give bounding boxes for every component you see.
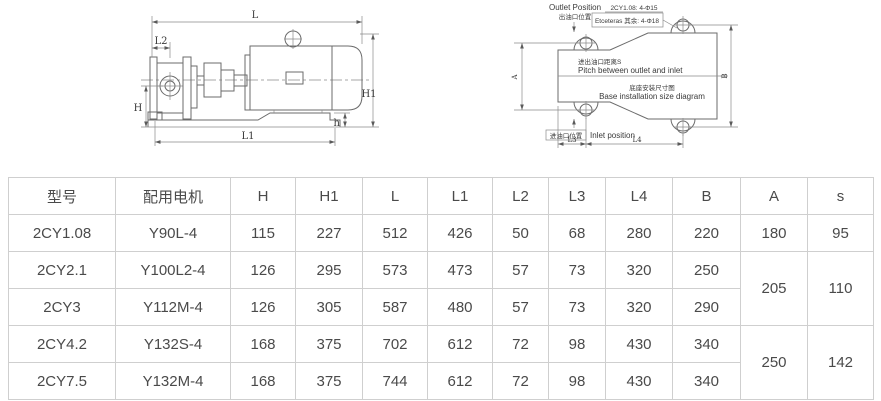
table-cell: 2CY3 [9,289,116,326]
table-cell: 98 [549,363,606,400]
column-header: L4 [606,178,673,215]
base-installation-diagram: Outlet Position 出油口位置 2CY1.08: 4-Φ15 Etc… [511,3,738,148]
table-cell: 573 [363,252,428,289]
table-cell: 2CY2.1 [9,252,116,289]
table-cell: 320 [606,289,673,326]
table-cell: Y112M-4 [116,289,231,326]
table-cell: 95 [808,215,874,252]
dim-label-L: L [252,10,259,21]
pump-rear-flange [183,57,191,119]
hole-note-line2: Etceteras 其余: 4-Φ18 [595,16,659,25]
inlet-position-label-zh: 进油口位置 [550,131,583,140]
table-cell: 2CY4.2 [9,326,116,363]
table-cell: Y100L2-4 [116,252,231,289]
dim-label-L1: L1 [241,131,254,142]
inlet-position-label-en: Inlet position [590,131,635,140]
motor-body [250,46,362,110]
table-row: 2CY2.1Y100L2-412629557347357733202502051… [9,252,874,289]
table-cell: 57 [493,289,549,326]
dim-label-L2: L2 [154,36,167,47]
table-row: 2CY1.08Y90L-4115227512426506828022018095 [9,215,874,252]
dim-label-H: H [134,103,143,114]
table-cell: 250 [741,326,808,400]
table-row: 2CY4.2Y132S-4168375702612729843034025014… [9,326,874,363]
spec-table: 型号配用电机HH1LL1L2L3L4BAs 2CY1.08Y90L-411522… [8,177,874,400]
table-cell: 2CY7.5 [9,363,116,400]
table-cell: 168 [231,326,296,363]
table-cell: 126 [231,252,296,289]
table-cell: Y132S-4 [116,326,231,363]
column-header: L3 [549,178,606,215]
column-header: 型号 [9,178,116,215]
table-cell: 430 [606,326,673,363]
outlet-position-label-zh: 出油口位置 [559,12,592,21]
column-header: B [673,178,741,215]
table-cell: 426 [428,215,493,252]
table-cell: 142 [808,326,874,400]
table-cell: 73 [549,252,606,289]
motor-nameplate [286,72,303,84]
table-cell: 375 [296,326,363,363]
table-cell: 220 [673,215,741,252]
pitch-label-zh: 进出油口距离S [578,57,622,66]
pump-shaft [197,76,204,85]
table-cell: 72 [493,326,549,363]
dim-label-L4: L4 [632,136,642,144]
bracket-plate [191,66,197,108]
table-cell: 115 [231,215,296,252]
page: L L2 H H1 h L1 [0,0,881,401]
table-cell: 612 [428,326,493,363]
coupling-half-small [221,70,234,91]
spec-table-head-row: 型号配用电机HH1LL1L2L3L4BAs [9,178,874,215]
table-cell: 744 [363,363,428,400]
pump-flange [150,57,157,119]
dim-label-L3: L3 [567,136,576,144]
table-cell: 702 [363,326,428,363]
table-cell: 320 [606,252,673,289]
column-header: L1 [428,178,493,215]
table-cell: 180 [741,215,808,252]
spec-table-body: 2CY1.08Y90L-4115227512426506828022018095… [9,215,874,400]
table-cell: 340 [673,363,741,400]
table-cell: 110 [808,252,874,326]
column-header: H [231,178,296,215]
column-header: 配用电机 [116,178,231,215]
hole-note-line1: 2CY1.08: 4-Φ15 [610,5,657,12]
table-cell: 473 [428,252,493,289]
dim-label-B: B [721,73,729,78]
table-cell: 227 [296,215,363,252]
dim-label-H1: H1 [361,89,376,100]
base-diagram-title-zh: 底座安装尺寸图 [629,83,675,92]
table-cell: 57 [493,252,549,289]
base-diagram-title-en: Base installation size diagram [599,92,705,101]
pitch-label-en: Pitch between outlet and inlet [578,66,683,75]
table-cell: 205 [741,252,808,326]
table-cell: 612 [428,363,493,400]
table-cell: 250 [673,252,741,289]
table-cell: 375 [296,363,363,400]
table-cell: 340 [673,326,741,363]
table-cell: 430 [606,363,673,400]
column-header: L [363,178,428,215]
table-cell: 72 [493,363,549,400]
diagrams-svg: L L2 H H1 h L1 [0,0,881,176]
table-cell: 587 [363,289,428,326]
table-cell: 2CY1.08 [9,215,116,252]
table-cell: Y90L-4 [116,215,231,252]
column-header: s [808,178,874,215]
table-cell: 305 [296,289,363,326]
table-cell: 126 [231,289,296,326]
column-header: L2 [493,178,549,215]
table-cell: 73 [549,289,606,326]
outlet-position-label-en: Outlet Position [549,3,601,12]
table-cell: 50 [493,215,549,252]
column-header: A [741,178,808,215]
column-header: H1 [296,178,363,215]
table-cell: 280 [606,215,673,252]
dim-label-A: A [511,74,519,81]
table-cell: 480 [428,289,493,326]
table-cell: Y132M-4 [116,363,231,400]
table-cell: 290 [673,289,741,326]
table-cell: 68 [549,215,606,252]
table-cell: 295 [296,252,363,289]
pump-side-view-diagram: L L2 H H1 h L1 [134,10,379,146]
diagrams-section: L L2 H H1 h L1 [0,0,881,176]
table-cell: 98 [549,326,606,363]
dim-label-h: h [334,118,341,129]
table-cell: 168 [231,363,296,400]
table-cell: 512 [363,215,428,252]
base-plate [148,113,340,127]
